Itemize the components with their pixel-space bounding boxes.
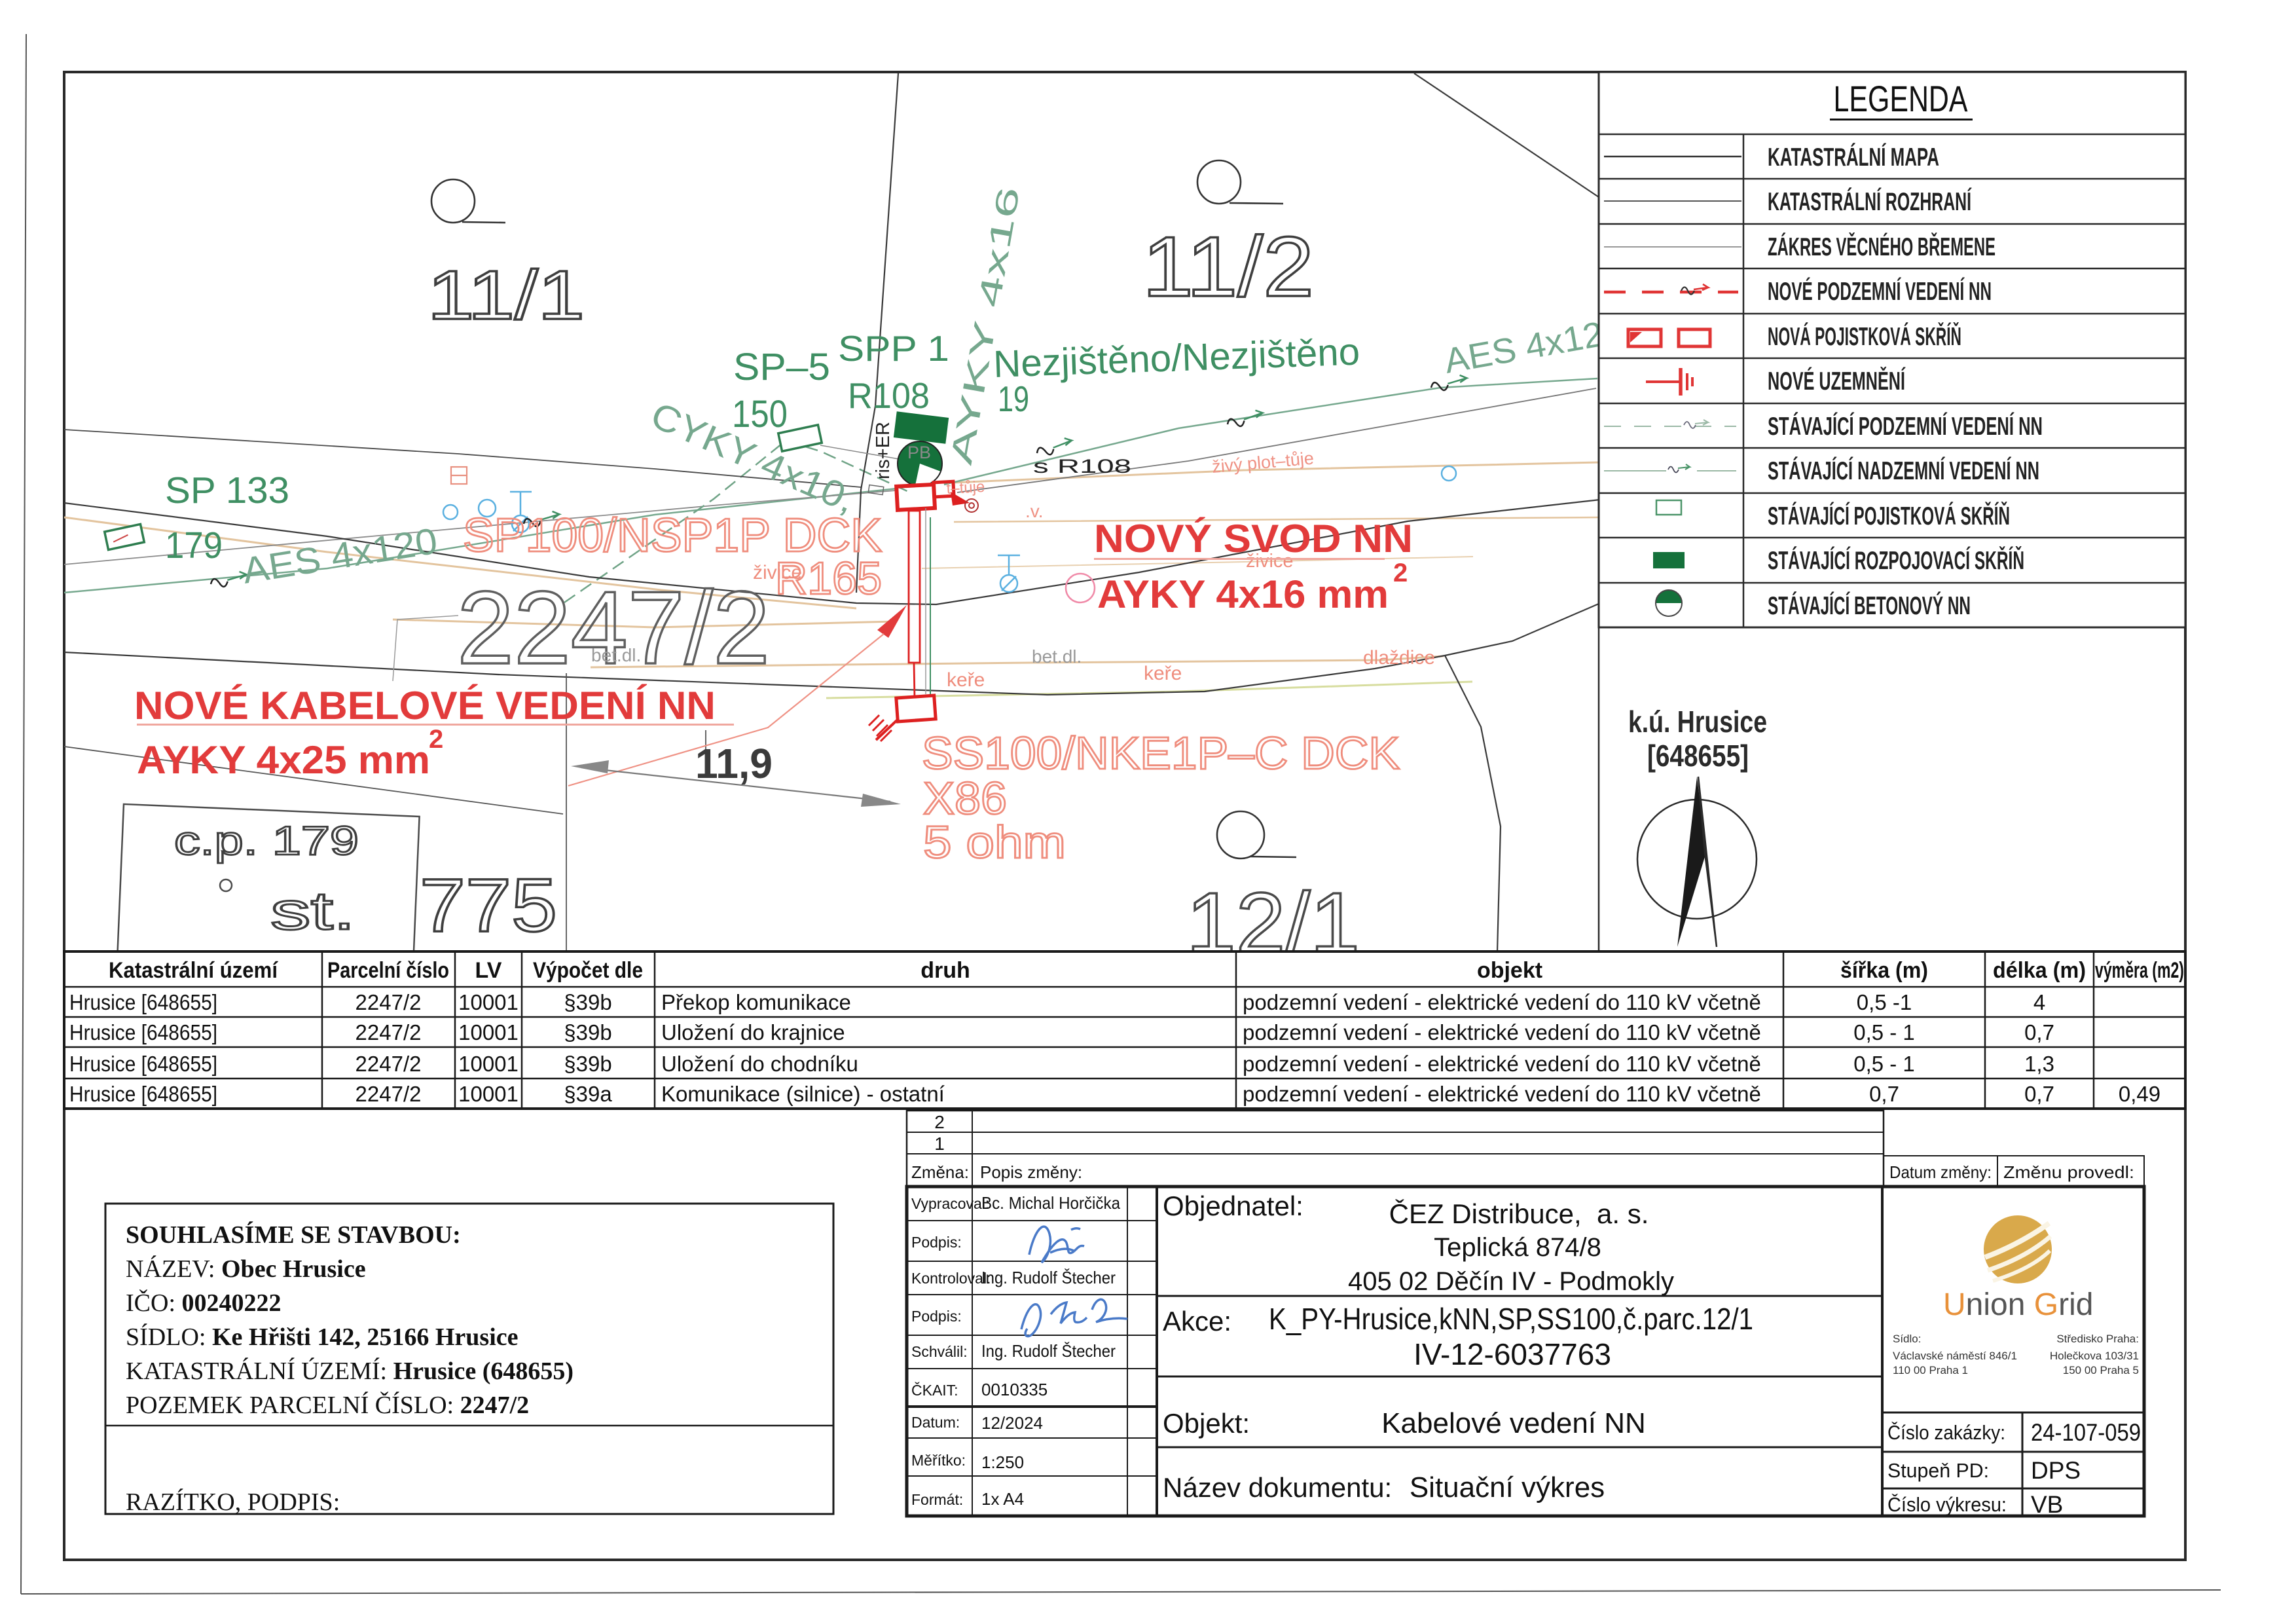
svg-text:0,7: 0,7: [2024, 1020, 2054, 1044]
svg-text:2247/2: 2247/2: [355, 1052, 422, 1076]
svg-text:druh: druh: [920, 958, 970, 983]
svg-text:150: 150: [732, 393, 788, 435]
svg-text:Datum:: Datum:: [911, 1414, 960, 1431]
svg-text:Situační výkres: Situační výkres: [1410, 1471, 1605, 1504]
svg-text:Sídlo:: Sídlo:: [1893, 1333, 1921, 1345]
svg-text:Změna:: Změna:: [911, 1162, 969, 1182]
svg-text:SP 133: SP 133: [165, 470, 289, 511]
svg-text:10001: 10001: [458, 990, 519, 1014]
svg-text:podzemní vedení - elektrické v: podzemní vedení - elektrické vedení do 1…: [1243, 990, 1761, 1014]
svg-text:2247/2: 2247/2: [457, 570, 770, 686]
svg-text:Kontroloval:: Kontroloval:: [911, 1270, 991, 1287]
svg-text:STÁVAJÍCÍ POJISTKOVÁ SKŘÍŇ: STÁVAJÍCÍ POJISTKOVÁ SKŘÍŇ: [1768, 502, 2010, 530]
svg-text:1:250: 1:250: [981, 1452, 1024, 1472]
svg-text:keře: keře: [1144, 663, 1182, 684]
svg-text:1: 1: [934, 1134, 945, 1154]
svg-text:STÁVAJÍCÍ ROZPOJOVACÍ SKŘÍŇ: STÁVAJÍCÍ ROZPOJOVACÍ SKŘÍŇ: [1768, 546, 2024, 575]
svg-text:K_PY-Hrusice,kNN,SP,SS100,č.pa: K_PY-Hrusice,kNN,SP,SS100,č.parc.12/1: [1269, 1302, 1753, 1336]
svg-text:k.ú. Hrusice: k.ú. Hrusice: [1628, 705, 1767, 739]
svg-text:NOVÉ PODZEMNÍ VEDENÍ NN: NOVÉ PODZEMNÍ VEDENÍ NN: [1768, 277, 1992, 306]
svg-text:2247/2: 2247/2: [355, 1020, 422, 1044]
svg-text:§39b: §39b: [564, 1052, 611, 1076]
svg-text:2: 2: [429, 725, 443, 754]
svg-text:SÍDLO: Ke Hřišti 142, 25166 Hr: SÍDLO: Ke Hřišti 142, 25166 Hrusice: [126, 1323, 519, 1351]
svg-text:11,9: 11,9: [695, 740, 773, 787]
svg-text:110 00 Praha 1: 110 00 Praha 1: [1893, 1364, 1968, 1376]
svg-text:Vypracoval:: Vypracoval:: [911, 1195, 989, 1212]
svg-text:Podpis:: Podpis:: [911, 1234, 962, 1251]
svg-text:Union Grid: Union Grid: [1943, 1287, 2093, 1322]
svg-text:Bc. Michal Horčička: Bc. Michal Horčička: [981, 1193, 1120, 1213]
svg-text:Hrusice [648655]: Hrusice [648655]: [69, 1020, 217, 1044]
svg-text:§39b: §39b: [564, 990, 611, 1014]
svg-text:Číslo zakázky:: Číslo zakázky:: [1887, 1421, 2005, 1444]
svg-text:c.p. 179: c.p. 179: [174, 819, 359, 864]
svg-text:podzemní vedení - elektrické v: podzemní vedení - elektrické vedení do 1…: [1243, 1020, 1761, 1044]
svg-text:AYKY 4x16 mm: AYKY 4x16 mm: [1097, 572, 1389, 616]
svg-text:Formát:: Formát:: [911, 1491, 963, 1508]
svg-text:0,5 - 1: 0,5 - 1: [1853, 1052, 1915, 1076]
svg-text:179: 179: [165, 525, 223, 566]
svg-text:Komunikace (silnice) - ostatní: Komunikace (silnice) - ostatní: [661, 1082, 945, 1106]
svg-text:§39a: §39a: [564, 1082, 612, 1106]
svg-text:t–tůje: t–tůje: [946, 478, 985, 498]
svg-text:405 02 Děčín IV - Podmokly: 405 02 Děčín IV - Podmokly: [1348, 1267, 1674, 1296]
svg-text:Výpočet dle: Výpočet dle: [533, 958, 643, 983]
svg-text:Název dokumentu:: Název dokumentu:: [1163, 1472, 1392, 1503]
svg-text:Uložení do krajnice: Uložení do krajnice: [661, 1020, 845, 1044]
svg-text:PB: PB: [907, 443, 931, 462]
svg-text:10001: 10001: [458, 1020, 519, 1044]
svg-text:Holečkova 103/31: Holečkova 103/31: [2050, 1350, 2139, 1362]
svg-text:10001: 10001: [458, 1082, 519, 1106]
svg-text:NOVÝ SVOD NN: NOVÝ SVOD NN: [1094, 517, 1413, 561]
svg-text:Teplická 874/8: Teplická 874/8: [1434, 1233, 1601, 1262]
svg-text:4: 4: [2033, 990, 2045, 1014]
svg-text:Překop komunikace: Překop komunikace: [661, 990, 851, 1014]
svg-text:0,5 - 1: 0,5 - 1: [1853, 1020, 1915, 1044]
svg-text:ZÁKRES VĚCNÉHO BŘEMENE: ZÁKRES VĚCNÉHO BŘEMENE: [1768, 232, 1995, 261]
svg-text:Objednatel:: Objednatel:: [1163, 1190, 1303, 1221]
svg-text:IV-12-6037763: IV-12-6037763: [1413, 1337, 1611, 1371]
svg-text:Objekt:: Objekt:: [1163, 1408, 1250, 1439]
svg-text:10001: 10001: [458, 1052, 519, 1076]
svg-text:2247/2: 2247/2: [355, 1082, 422, 1106]
svg-text:STÁVAJÍCÍ NADZEMNÍ VEDENÍ NN: STÁVAJÍCÍ NADZEMNÍ VEDENÍ NN: [1768, 456, 2039, 485]
svg-text:11/1: 11/1: [428, 257, 585, 334]
svg-text:NOVÉ KABELOVÉ VEDENÍ NN: NOVÉ KABELOVÉ VEDENÍ NN: [134, 684, 716, 728]
svg-text:STÁVAJÍCÍ PODZEMNÍ VEDENÍ NN: STÁVAJÍCÍ PODZEMNÍ VEDENÍ NN: [1768, 412, 2043, 441]
svg-text:šířka (m): šířka (m): [1840, 958, 1928, 983]
svg-text:Změnu provedl:: Změnu provedl:: [2003, 1162, 2134, 1182]
svg-text:Číslo výkresu:: Číslo výkresu:: [1887, 1493, 2007, 1516]
svg-text:Katastrální území: Katastrální území: [109, 958, 278, 983]
svg-text:Popis změny:: Popis změny:: [980, 1162, 1082, 1182]
svg-text:.v.: .v.: [1025, 501, 1043, 521]
svg-text:Uložení do chodníku: Uložení do chodníku: [661, 1052, 858, 1076]
svg-text:1x A4: 1x A4: [981, 1489, 1024, 1509]
svg-text:NOVÁ POJISTKOVÁ SKŘÍŇ: NOVÁ POJISTKOVÁ SKŘÍŇ: [1768, 322, 1961, 351]
svg-text:POZEMEK PARCELNÍ ČÍSLO: 2247/2: POZEMEK PARCELNÍ ČÍSLO: 2247/2: [126, 1392, 529, 1419]
svg-text:Středisko Praha:: Středisko Praha:: [2056, 1333, 2139, 1345]
svg-text:DPS: DPS: [2031, 1457, 2081, 1484]
svg-text:Hrusice [648655]: Hrusice [648655]: [69, 1082, 217, 1106]
svg-text:775: 775: [420, 864, 557, 948]
svg-text:AYKY 4x25 mm: AYKY 4x25 mm: [137, 738, 430, 782]
svg-text:1,3: 1,3: [2024, 1052, 2054, 1076]
svg-text:2: 2: [934, 1112, 945, 1132]
svg-text:5 ohm: 5 ohm: [923, 817, 1066, 868]
svg-text:2247/2: 2247/2: [355, 990, 422, 1014]
svg-text:podzemní vedení - elektrické v: podzemní vedení - elektrické vedení do 1…: [1243, 1052, 1761, 1076]
svg-text:Parcelní číslo: Parcelní číslo: [327, 958, 449, 983]
svg-text:24-107-059: 24-107-059: [2031, 1419, 2141, 1446]
svg-text:SS100/NKE1P–C DCK: SS100/NKE1P–C DCK: [922, 728, 1400, 779]
svg-text:0,49: 0,49: [2119, 1082, 2160, 1106]
svg-text:SOUHLASÍME SE STAVBOU:: SOUHLASÍME SE STAVBOU:: [126, 1221, 461, 1249]
svg-text:Kabelové vedení NN: Kabelové vedení NN: [1381, 1407, 1646, 1439]
svg-text:KATASTRÁLNÍ ÚZEMÍ: Hrusice (64: KATASTRÁLNÍ ÚZEMÍ: Hrusice (648655): [126, 1357, 574, 1385]
svg-text:SPP 1: SPP 1: [838, 328, 949, 369]
svg-text:11/2: 11/2: [1142, 219, 1314, 314]
svg-text:keře: keře: [947, 669, 985, 691]
svg-text:SP–5: SP–5: [733, 346, 830, 388]
svg-text:Datum změny:: Datum změny:: [1889, 1162, 1992, 1182]
svg-text:s R108: s R108: [1033, 456, 1131, 477]
svg-text:2: 2: [1393, 559, 1408, 587]
svg-text:Schválil:: Schválil:: [911, 1343, 968, 1360]
svg-text:bet.dl.: bet.dl.: [1032, 646, 1082, 667]
svg-text:IČO: 00240222: IČO: 00240222: [126, 1289, 282, 1317]
svg-text:STÁVAJÍCÍ BETONOVÝ NN: STÁVAJÍCÍ BETONOVÝ NN: [1768, 591, 1971, 620]
svg-text:LEGENDA: LEGENDA: [1834, 78, 1968, 119]
svg-text:§39b: §39b: [564, 1020, 611, 1044]
svg-text:st.: st.: [270, 881, 355, 941]
svg-text:ris+ER: ris+ER: [873, 422, 894, 479]
svg-text:150 00 Praha 5: 150 00 Praha 5: [2063, 1364, 2139, 1376]
svg-text:Podpis:: Podpis:: [911, 1308, 962, 1325]
svg-text:R108: R108: [848, 375, 930, 416]
svg-text:živice: živice: [753, 562, 802, 583]
svg-text:0,5 -1: 0,5 -1: [1857, 990, 1912, 1014]
svg-text:KATASTRÁLNÍ ROZHRANÍ: KATASTRÁLNÍ ROZHRANÍ: [1768, 187, 1972, 216]
svg-text:Hrusice [648655]: Hrusice [648655]: [69, 1052, 217, 1076]
svg-text:dlaždice: dlaždice: [1363, 647, 1435, 669]
svg-text:0010335: 0010335: [981, 1380, 1048, 1399]
svg-text:objekt: objekt: [1477, 958, 1542, 983]
svg-text:Akce:: Akce:: [1163, 1306, 1231, 1337]
svg-text:Hrusice [648655]: Hrusice [648655]: [69, 990, 217, 1014]
svg-text:Měřítko:: Měřítko:: [911, 1452, 966, 1469]
svg-text:NOVÉ UZEMNĚNÍ: NOVÉ UZEMNĚNÍ: [1768, 367, 1906, 396]
svg-text:VB: VB: [2031, 1491, 2063, 1518]
svg-text:Stupeň PD:: Stupeň PD:: [1887, 1459, 1989, 1482]
svg-text:RAZÍTKO, PODPIS:: RAZÍTKO, PODPIS:: [126, 1488, 340, 1516]
svg-text:délka (m): délka (m): [1993, 958, 2086, 983]
svg-text:Ing. Rudolf Štecher: Ing. Rudolf Štecher: [981, 1341, 1116, 1361]
svg-text:0,7: 0,7: [1869, 1082, 1899, 1106]
svg-text:NÁZEV: Obec Hrusice: NÁZEV: Obec Hrusice: [126, 1255, 366, 1283]
svg-text:bet.dl.: bet.dl.: [591, 645, 641, 665]
svg-text:[648655]: [648655]: [1647, 739, 1749, 773]
svg-text:Václavské náměstí 846/1: Václavské náměstí 846/1: [1893, 1350, 2017, 1362]
svg-text:Ing. Rudolf Štecher: Ing. Rudolf Štecher: [981, 1268, 1116, 1287]
svg-text:výměra (m2): výměra (m2): [2095, 958, 2184, 983]
svg-text:0,7: 0,7: [2024, 1082, 2054, 1106]
svg-text:ČKAIT:: ČKAIT:: [911, 1381, 958, 1399]
svg-text:KATASTRÁLNÍ MAPA: KATASTRÁLNÍ MAPA: [1768, 143, 1939, 172]
svg-text:LV: LV: [475, 958, 502, 983]
svg-text:12/2024: 12/2024: [981, 1413, 1043, 1433]
svg-text:ČEZ Distribuce, a. s.: ČEZ Distribuce, a. s.: [1389, 1198, 1649, 1229]
svg-text:podzemní vedení - elektrické v: podzemní vedení - elektrické vedení do 1…: [1243, 1082, 1761, 1106]
